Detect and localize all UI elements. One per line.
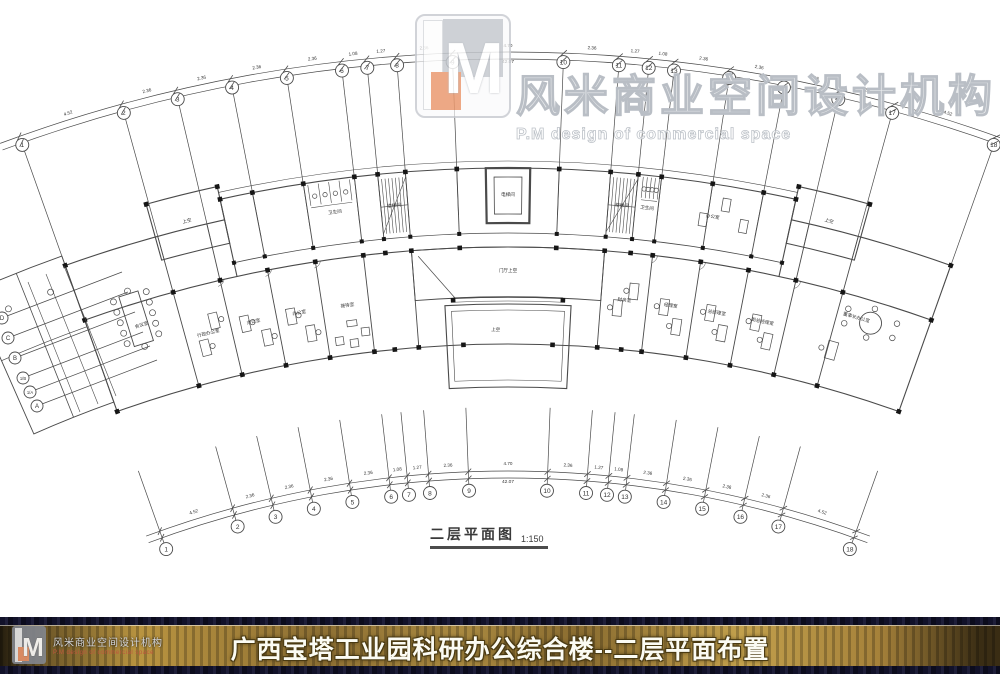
column-marker [639,349,644,354]
left-grid-letter: 1/B [20,376,26,381]
furniture [716,325,728,342]
chair [863,335,869,341]
chair [121,330,127,336]
chair [110,299,116,305]
dimension-text: 2.36 [722,483,732,490]
column-marker [771,372,777,378]
plan-wall [452,310,565,381]
room-label: 经理室 [664,301,679,309]
partition-wall [774,224,809,375]
column-marker [727,363,732,368]
room-label: 副总经理室 [751,316,775,328]
column-marker [457,232,461,236]
column-marker [215,184,220,189]
room-label: 行政办公室 [196,327,220,340]
grid-line [216,446,236,520]
furniture [671,318,682,335]
room-label: 上空 [182,216,193,224]
left-grid-line [20,312,135,356]
grid-bubble-number: 5 [351,499,355,506]
dim-tick [850,534,858,542]
dim-tick [229,505,236,512]
column-marker [630,237,634,241]
chair [316,330,321,335]
column-marker [560,298,565,303]
left-grid-line [28,332,143,376]
column-marker [700,246,705,251]
dimension-text: 2.36 [245,492,255,499]
column-marker [928,317,934,323]
partition-wall [267,270,285,365]
wc-fixture [323,192,327,196]
caption-scale: 1:150 [521,534,544,544]
grid-bubble-number: 16 [737,514,745,521]
partition-wall [641,255,652,351]
room-label: 接待室 [340,301,355,310]
room-label: 财务室 [617,296,632,304]
chair [700,309,705,314]
column-marker [840,289,846,295]
furniture [347,320,358,327]
column-marker [382,237,386,241]
dimension-text: 2.36 [443,462,453,468]
chair [143,289,149,295]
grid-line [626,414,635,490]
dimension-text: 4.52 [63,109,73,117]
grid-bubble-number: 4 [312,506,316,513]
partition-wall [457,169,459,234]
chair [846,306,852,312]
chair [124,341,130,347]
dimension-text: 2.36 [284,483,294,490]
chair [153,320,159,326]
chair [219,316,224,321]
dimension-text: 2.36 [308,56,318,62]
dim-tick [268,495,275,502]
round-table [860,312,882,334]
column-marker [628,250,633,255]
dimension-text: 2.36 [643,470,653,476]
dim-tick [741,495,748,502]
dimension-text: 2.36 [683,476,693,483]
column-marker [454,167,459,172]
dimension-text: 2.36 [754,64,764,71]
grid-bubble-number: 7 [365,65,369,72]
column-marker [683,355,688,360]
furniture [361,327,370,336]
plan-wall [411,247,604,301]
left-grid-line [13,292,128,336]
partition-wall [730,270,748,365]
left-grid-letter: D [0,316,5,322]
dimension-text: 2.36 [761,492,771,499]
dimension-text: 2.36 [363,470,373,476]
room-label: 上空 [491,326,501,332]
column-marker [457,246,462,251]
grid-bubble-number: 15 [699,506,707,513]
partition-wall [363,255,374,351]
wc-stall [349,179,351,200]
dimension-text: 1.08 [614,466,624,472]
grid-bubble-number: 3 [274,514,278,521]
chair [150,310,156,316]
entrance-beam [453,301,563,302]
grid-line [703,427,718,503]
chair [890,335,896,341]
dimension-text: 2.36 [864,87,874,94]
column-marker [948,263,954,269]
dimension-text: 4.52 [189,508,199,516]
column-marker [652,239,656,243]
partition-wall [817,236,858,385]
column-marker [608,169,613,174]
column-marker [313,259,318,264]
column-marker [814,383,820,389]
chair [841,320,847,326]
wc-stall [318,184,321,205]
dimension-text: 4.52 [817,508,827,516]
column-marker [793,278,799,284]
room-label: 楼梯间 [387,201,402,209]
wc-fixture [313,194,317,198]
grid-line [382,414,391,490]
dim-tick [156,527,164,535]
column-marker [327,355,332,360]
room-label: 楼梯间 [615,201,630,209]
column-marker [217,197,222,202]
left-grid-letter: A [35,404,39,410]
column-marker [595,345,600,350]
column-marker [604,235,608,239]
column-marker [352,174,357,179]
grid-bubble-number: 18 [846,546,854,553]
column-marker [262,254,267,259]
dim-tick [269,502,276,509]
left-grid-letter: 1/A [27,390,33,395]
grid-bubble-number: 4 [230,85,234,92]
partition-wall [686,262,701,358]
wc-fixture [333,191,337,195]
partition-wall [751,193,763,257]
grid-line [586,410,592,487]
column-marker [451,298,456,303]
column-marker [746,267,751,272]
column-marker [555,232,559,236]
plan-wall [146,187,230,261]
corridor-wall [234,233,782,263]
grid-bubble-number: 3 [176,96,180,103]
title-banner: M 风米商业空间设计机构 P.M design of commercial sp… [0,617,1000,674]
column-marker [403,169,408,174]
column-marker [698,259,703,264]
column-marker [360,239,364,243]
column-marker [554,246,559,251]
left-grid-letter: C [6,336,11,342]
dimension-text: 4.70 [504,43,513,48]
chair [117,320,123,326]
dimension-text: 2.36 [252,64,262,71]
grid-line [852,471,878,544]
dimension-text: 2.36 [587,45,597,51]
chair [624,288,629,293]
grid-bubble-number: 14 [660,499,668,506]
grid-bubble-number: 2 [122,110,126,117]
chair [607,305,612,310]
chair [156,331,162,337]
room-label: 董事长办公室 [842,310,871,325]
column-marker [409,248,414,253]
column-marker [217,278,223,284]
dimension-text: 1.27 [630,48,640,54]
wc-stall [329,182,332,203]
left-grid-line [35,346,150,390]
furniture [306,325,318,342]
dimension-text: 2.36 [324,476,334,483]
column-marker [659,174,664,179]
dimension-text: 2.36 [699,56,709,62]
chair [712,329,717,334]
grid-bubble-number: 6 [340,68,344,75]
column-marker [372,349,377,354]
column-marker [361,253,366,258]
column-marker [896,409,902,415]
column-marker [780,260,785,265]
sheet-title: 广西宝塔工业园科研办公综合楼--二层平面布置 [0,630,1000,666]
furniture [199,339,212,357]
grid-line [780,446,800,520]
column-marker [619,347,624,352]
plan-wall [786,187,870,261]
dimension-text: 1.27 [412,465,422,471]
column-marker [550,342,555,347]
column-marker [602,248,607,253]
column-marker [301,181,306,186]
void-diagonal [418,256,455,298]
plan-line [641,200,657,202]
grid-bubble-number: 9 [467,488,471,495]
room-label: 电梯间 [501,191,515,198]
column-marker [375,172,380,177]
grid-line [608,412,615,489]
grid-line [138,471,164,544]
partition-wall [315,262,330,358]
column-marker [650,253,655,258]
plan-line [899,265,951,411]
dimension-text: 2.36 [142,87,152,94]
furniture [335,337,344,346]
outer-wall [65,220,224,266]
chair [894,321,900,327]
furniture [5,306,11,312]
grid-line [424,410,430,487]
partition-wall [207,224,242,375]
chair [114,309,120,315]
grid-line [547,408,550,485]
grid-bubble-number: 8 [428,490,432,497]
inner-band-outer-wall [85,247,932,320]
room-label: 门厅上空 [499,267,518,274]
left-dim-line [64,266,116,396]
dimension-text: 1.08 [658,51,668,57]
column-marker [283,363,288,368]
wc-stall [308,185,311,206]
dim-tick [231,511,238,518]
wc-fixture [344,190,348,194]
room-label: 总经理室 [707,308,727,317]
grid-line [298,427,313,503]
grid-bubble-number: 6 [389,494,393,501]
stair-tread [406,177,410,232]
column-marker [383,250,388,255]
furniture [721,198,731,212]
column-marker [761,190,766,195]
top-dimension-line [3,59,1000,150]
column-marker [636,172,641,177]
left-grid-letter: B [13,356,17,362]
dim-tick [740,502,747,509]
room-label: 办公室 [705,212,720,221]
chair [210,343,215,348]
grid-bubble-number: 8 [395,63,399,70]
chair [666,323,671,328]
column-marker [250,190,255,195]
entrance-beam [453,297,563,298]
wc-stall [339,181,342,202]
chair [757,337,762,342]
column-marker [416,345,421,350]
furniture [761,333,773,351]
chair [654,304,659,309]
column-marker [710,181,715,186]
furniture [261,329,273,346]
stair-tread [606,177,610,232]
dimension-total: 42.07 [502,479,514,485]
outer-wall [791,220,950,266]
drawing-sheet: 1122334455667788991010111112121313141415… [0,0,1000,674]
chair [272,333,277,338]
dimension-text: 4.70 [504,461,513,466]
plan-line [311,202,352,208]
dimension-total: 42.07 [502,59,514,65]
dimension-text: 2.36 [419,45,429,51]
grid-bubble-number: 5 [285,75,289,82]
grid-bubble-number: 10 [543,488,551,495]
column-marker [311,246,316,251]
dim-tick [158,534,166,542]
grid-bubble-number: 11 [583,490,590,497]
partition-wall [557,169,559,234]
column-marker [240,372,246,378]
grid-bubble-number: 1 [164,546,168,553]
column-marker [793,197,798,202]
partition-wall [303,184,313,248]
dim-tick [780,505,787,512]
plan-wall [0,256,114,434]
chair [819,345,824,350]
column-marker [557,167,562,172]
furniture [738,219,748,233]
furniture [350,339,359,348]
column-marker [265,267,270,272]
room-label: 办公室 [292,308,307,317]
chair [146,299,152,305]
dimension-text: 2.36 [563,462,573,468]
grid-bubble-number: 2 [236,524,240,531]
dimension-text: 2.36 [197,74,207,81]
drawing-caption: 二层平面图1:150 [430,524,650,549]
column-marker [170,289,176,295]
chair [872,306,878,312]
partition-wall [354,177,361,242]
partition-wall [252,193,264,257]
dimension-text: 1.08 [393,466,403,472]
dimension-text: 1.27 [594,465,604,471]
column-marker [408,235,412,239]
top-dimension-line [0,52,1000,143]
column-marker [392,347,397,352]
caption-title: 二层平面图 [430,524,515,544]
inner-wall [117,344,899,412]
dimension-text: 4.52 [943,109,953,117]
column-marker [461,342,466,347]
column-marker [196,383,202,389]
partition-wall [654,177,661,242]
grid-bubble-number: 12 [603,492,611,499]
room-label: 卫生间 [328,208,343,217]
dim-tick [778,511,785,518]
caption-underline [430,546,548,549]
grid-bubble-number: 7 [407,492,411,499]
partition-wall [158,236,199,385]
dimension-text: 1.27 [376,48,386,54]
grid-bubble-number: 17 [775,524,783,531]
grid-bubble-number: 13 [621,494,629,501]
room-label: 卫生间 [640,204,655,212]
column-marker [232,260,237,265]
dim-tick [852,527,860,535]
grid-bubble-number: 9 [451,59,455,66]
room-label: 会议室 [134,319,150,330]
column-marker [62,263,68,269]
grid-line [401,412,408,489]
column-marker [749,254,754,259]
column-marker [114,409,120,415]
column-marker [796,184,801,189]
dimension-text: 1.08 [348,51,358,57]
desk [824,340,838,360]
room-label: 上空 [824,216,835,224]
dimension-text: 2.36 [809,75,819,82]
